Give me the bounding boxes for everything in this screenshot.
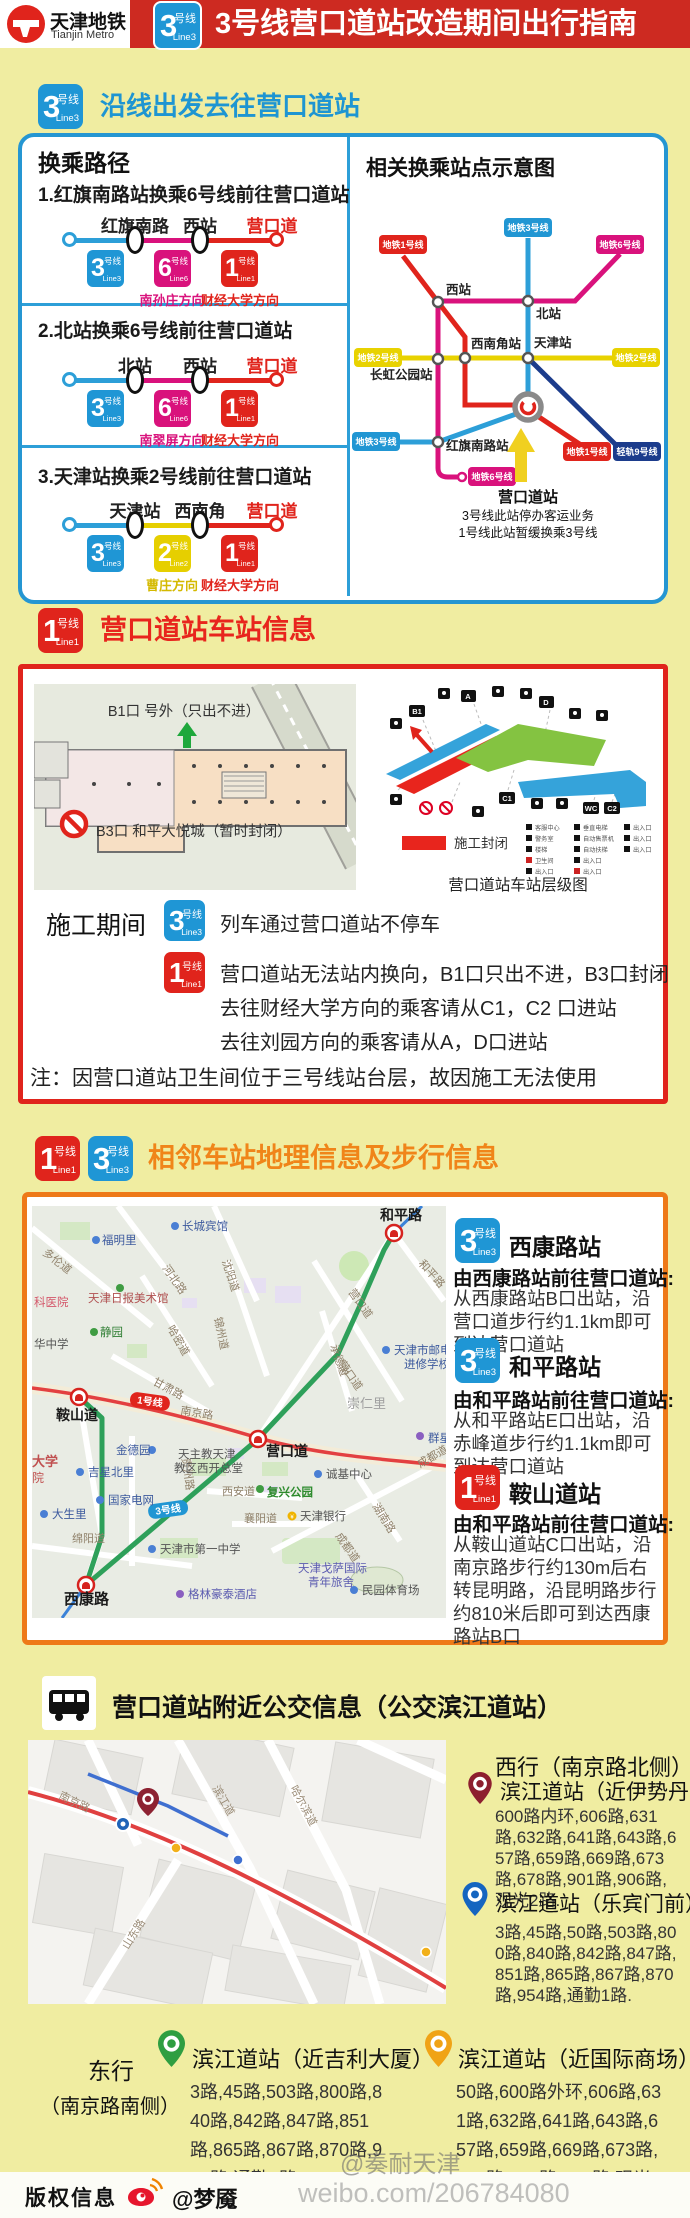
label-xiandao: 西安道 xyxy=(222,1484,255,1498)
pin-west2-icon xyxy=(462,1882,488,1916)
label-youdian2: 进修学校 xyxy=(404,1357,446,1371)
pin-west1-icon xyxy=(468,1772,492,1804)
copyright-label: 版权信息 xyxy=(25,2182,117,2212)
badge-line3-top: 地铁3号线 xyxy=(507,222,548,233)
route1-interchange-1 xyxy=(126,226,144,254)
logo-subtitle: Tianjin Metro xyxy=(51,29,114,41)
route2-line6-badge: 6号线Line6 xyxy=(154,390,191,427)
transfer-title: 换乘路径 xyxy=(38,144,130,178)
mini-6: 自动售票机 xyxy=(583,835,615,843)
schematic-station-labels: 西站 北站 西南角站 天津站 长虹公园站 红旗南路站 xyxy=(370,282,572,453)
route1-seg-line1 xyxy=(200,238,277,243)
s3-heading: 相邻车站地理信息及步行信息 xyxy=(148,1136,499,1181)
network-schematic: 地铁1号线 地铁3号线 地铁6号线 地铁2号线 地铁2号线 地铁3号线 地铁6号… xyxy=(350,190,664,596)
east1-name: 滨江道站（近吉利大厦） xyxy=(192,2042,434,2074)
exit-box-a: A xyxy=(465,692,471,701)
cons-line3-text: 列车通过营口道站不停车 xyxy=(220,908,440,937)
mini-7: 自动扶梯 xyxy=(583,846,608,854)
pin-east1-icon xyxy=(158,2030,185,2067)
mini-12: 出入口 xyxy=(633,846,652,854)
watermark-url: weibo.com/206784080 xyxy=(298,2178,570,2209)
weibo-handle: @梦魇 xyxy=(172,2182,237,2214)
s3-line1-badge: 1号线Line1 xyxy=(35,1136,80,1181)
cons-line1-text3: 去往刘园方向的乘客请从A，D口进站 xyxy=(220,1026,548,1055)
route3-line3-badge: 3号线Line3 xyxy=(87,535,124,572)
callout-station: 营口道站 xyxy=(498,488,558,506)
line1-path xyxy=(403,256,513,405)
route2-seg-line1 xyxy=(200,378,277,383)
callout-line1: 3号线此站停办客运业务 xyxy=(462,508,594,523)
route1-line6-badge: 6号线Line6 xyxy=(154,250,191,287)
label-daxue: 大学 xyxy=(32,1454,58,1469)
west2-name: 滨江道站（乐宾门前） xyxy=(496,1888,690,1918)
label-xiangyangdao: 襄阳道 xyxy=(244,1511,277,1525)
mini-9: 出入口 xyxy=(583,868,602,876)
exit-box-wc: WC xyxy=(585,804,598,813)
label-jindeyuan: 金德园 xyxy=(116,1443,151,1457)
label-minyuan: 民园体育场 xyxy=(362,1583,420,1597)
exit-b3-label: B3口 和平大悦城（暂时封闭） xyxy=(96,823,292,840)
s2-heading: 营口道站车站信息 xyxy=(100,608,316,653)
route2-heading: 2.北站换乘6号线前往营口道站 xyxy=(38,316,292,343)
label-qunxing: 群星 xyxy=(428,1431,446,1445)
header-line3-badge: 3 号线 Line3 xyxy=(153,1,202,50)
cons-line1-text1: 营口道站无法站内换向，B1口只出不进，B3口封闭 xyxy=(220,958,669,987)
route2-endpoint-left xyxy=(62,372,77,387)
label-yingkoudao-station: 营口道 xyxy=(266,1443,308,1459)
card2-name: 和平路站 xyxy=(509,1348,601,1382)
mini-legend: 客服中心 警务室 楼梯 卫生间 出入口 垂直电梯 自动售票机 自动扶梯 出入口 … xyxy=(526,824,652,876)
route3-heading: 3.天津站换乘2号线前往营口道站 xyxy=(38,462,311,489)
route2-dir-mid: 南翠屏方向 xyxy=(139,430,204,449)
route2-interchange-1 xyxy=(126,366,144,394)
exit-box-b1: B1 xyxy=(412,707,422,716)
label-meishuguan: 天津日报美术馆 xyxy=(88,1291,169,1305)
label-anshandao-station: 鞍山道 xyxy=(56,1407,98,1423)
route1-endpoint-left xyxy=(62,232,77,247)
badge-line2-right: 地铁2号线 xyxy=(615,352,656,363)
east2-name: 滨江道站（近国际商场） xyxy=(458,2042,690,2074)
east-heading-2: （南京路南侧） xyxy=(40,2090,180,2119)
watermark-account: @奏耐天津 xyxy=(340,2144,460,2179)
label-youdian1: 天津市邮电通 xyxy=(394,1343,446,1357)
yingkoudao-interchange-ring xyxy=(515,394,541,420)
card3-text: 从鞍山道站C口出站，沿南京路步行约130m后右转昆明路，沿昆明路步行约810米后… xyxy=(453,1533,665,1648)
route3-line2-badge: 2号线Line2 xyxy=(154,535,191,572)
label-mianyangdao: 绵阳道 xyxy=(72,1531,105,1545)
badge-line1-bottom: 地铁1号线 xyxy=(566,446,607,457)
label-fuxinggongyuan: 复兴公园 xyxy=(266,1485,313,1499)
label-tianjinzhan: 天津站 xyxy=(534,335,572,350)
label-gesa1: 天津戈萨国际 xyxy=(298,1562,367,1575)
mini-10: 出入口 xyxy=(633,824,652,832)
label-yizhong: 天津市第一中学 xyxy=(160,1542,241,1556)
label-yuan: 院 xyxy=(32,1471,44,1485)
route1-interchange-2 xyxy=(191,226,209,254)
s4-heading: 营口道站附近公交信息（公交滨江道站） xyxy=(112,1688,562,1724)
label-huazhongxue: 华中学 xyxy=(34,1337,69,1351)
poster: 天津地铁 Tianjin Metro 3 号线 Line3 3号线营口道站改造期… xyxy=(0,0,690,2218)
west1-name: 滨江道站（近伊势丹） xyxy=(500,1776,690,1806)
label-xizhan: 西站 xyxy=(446,282,472,297)
cons-line1-badge: 1号线Line1 xyxy=(164,952,205,993)
s1-line3-badge: 3 号线 Line3 xyxy=(38,84,83,129)
weibo-icon xyxy=(126,2176,164,2210)
label-tianzhujiao1: 天主教天津 xyxy=(178,1447,236,1461)
s3-line3-badge: 3号线Line3 xyxy=(88,1136,133,1181)
bus-icon xyxy=(46,1684,92,1724)
route3-interchange-2 xyxy=(191,511,209,539)
exit-box-c2: C2 xyxy=(607,804,617,813)
page-title: 3号线营口道站改造期间出行指南 xyxy=(215,0,637,48)
label-jingyuan: 静园 xyxy=(100,1325,123,1339)
card3-name: 鞍山道站 xyxy=(509,1475,601,1509)
west2-routes: 3路,45路,50路,503路,800路,840路,842路,847路,851路… xyxy=(495,1922,683,2006)
label-yinhang: 天津银行 xyxy=(300,1509,346,1523)
mini-3: 卫生间 xyxy=(535,857,554,865)
label-beizhan: 北站 xyxy=(536,306,562,321)
label-dianwang: 国家电网 xyxy=(108,1493,154,1507)
line6-terminus-dot xyxy=(458,473,466,481)
station-floorplan: B1口 号外（只出不进） B3口 和平大悦城（暂时封闭） xyxy=(34,684,356,890)
route2-endpoint-right xyxy=(269,372,284,387)
route1-heading: 1.红旗南路站换乘6号线前往营口道站 xyxy=(38,180,349,207)
label-xikanglu-station: 西康路 xyxy=(64,1590,110,1608)
mini-4: 出入口 xyxy=(535,868,554,876)
legend-closed-label: 施工封闭 xyxy=(454,836,508,851)
route3-endpoint-left xyxy=(62,517,77,532)
badge-line2-left: 地铁2号线 xyxy=(357,352,398,363)
route3-interchange-1 xyxy=(126,511,144,539)
card3-line1-badge: 1号线Line1 xyxy=(455,1465,500,1510)
street-map: 1号线 3号线 ¥ 多伦道 河北路 沈阳道 哈密道 锦州道 甘肃路 南京路 承德… xyxy=(32,1206,446,1618)
bus-map: 南京路 哈尔滨道 滨江道 山东路 xyxy=(28,1740,446,2004)
route3-dir-right: 财经大学方向 xyxy=(201,575,279,594)
route1-dir-mid: 南孙庄方向 xyxy=(139,290,204,309)
mini-8: 出入口 xyxy=(583,857,602,865)
cons-line1-text2: 去往财经大学方向的乘客请从C1，C2 口进站 xyxy=(220,992,617,1021)
station-level-diagram: B1 A D C1 C2 WC 施工封闭 客服中心 警务室 楼梯 卫生间 出入口… xyxy=(368,686,666,896)
label-hongqi: 红旗南路站 xyxy=(446,438,509,453)
badge-line6-top: 地铁6号线 xyxy=(599,239,640,250)
route3-dir-mid: 曹庄方向 xyxy=(146,575,198,594)
route1-dir-right: 财经大学方向 xyxy=(201,290,279,309)
level-diagram-caption: 营口道站车站层级图 xyxy=(448,876,588,894)
route3-seg-line1 xyxy=(200,523,277,528)
card1-name: 西康路站 xyxy=(509,1228,601,1262)
card1-line3-badge: 3号线Line3 xyxy=(455,1218,500,1263)
label-chongrenli: 崇仁里 xyxy=(347,1396,386,1411)
label-keyiyuan: 科医院 xyxy=(34,1295,69,1309)
badge-line6-bottom: 地铁6号线 xyxy=(471,471,512,482)
cons-note: 注：因营口道站卫生间位于三号线站台层，故因施工无法使用 xyxy=(30,1062,597,1092)
route1-endpoint-right xyxy=(269,232,284,247)
callout-line2: 1号线此站暂缓换乘3号线 xyxy=(459,526,598,540)
label-gelinhaotai: 格林豪泰酒店 xyxy=(188,1587,257,1601)
label-fumingli: 福明里 xyxy=(102,1233,137,1247)
label-changhong: 长虹公园站 xyxy=(370,367,433,382)
east-heading-1: 东行 xyxy=(88,2052,134,2086)
label-xinanjiao: 西南角站 xyxy=(471,336,522,351)
legend-closed-swatch xyxy=(402,836,446,850)
label-hepinglu-station: 和平路 xyxy=(380,1207,423,1223)
schematic-title: 相关换乘站点示意图 xyxy=(366,152,555,182)
label-changcheng: 长城宾馆 xyxy=(182,1219,228,1233)
label-gesa2: 青年旅舍 xyxy=(308,1575,354,1589)
route3-line1-badge: 1号线Line1 xyxy=(221,535,258,572)
mini-0: 客服中心 xyxy=(535,824,560,832)
closed-exit-dots xyxy=(420,802,452,814)
s1-heading: 沿线出发去往营口道站 xyxy=(100,84,360,129)
route3-endpoint-right xyxy=(269,517,284,532)
label-chengjizhongxin: 诚基中心 xyxy=(326,1468,372,1481)
route1-line3-badge: 3号线Line3 xyxy=(87,250,124,287)
label-tianzhujiao2: 教区西开总堂 xyxy=(174,1461,243,1475)
cons-line3-badge: 3号线Line3 xyxy=(164,900,205,941)
label-jixingbeili: 吉星北里 xyxy=(88,1466,134,1479)
route2-line1-badge: 1号线Line1 xyxy=(221,390,258,427)
exit-box-d: D xyxy=(543,698,549,707)
label-dashengli: 大生里 xyxy=(52,1507,87,1521)
route1-line1-badge: 1号线Line1 xyxy=(221,250,258,287)
tianjin-metro-logo-icon xyxy=(6,4,46,44)
badge-line1-top: 地铁1号线 xyxy=(382,239,423,250)
route2-line3-badge: 3号线Line3 xyxy=(87,390,124,427)
mini-1: 警务室 xyxy=(535,835,554,843)
route2-interchange-2 xyxy=(191,366,209,394)
exit-b1-label: B1口 号外（只出不进） xyxy=(108,703,260,720)
s2-line1-badge: 1号线Line1 xyxy=(38,608,83,653)
badge-line3-left: 地铁3号线 xyxy=(355,436,396,447)
construction-label: 施工期间 xyxy=(46,906,146,942)
badge-line9-bottom: 轻轨9号线 xyxy=(616,446,657,457)
mini-11: 出入口 xyxy=(633,835,652,843)
exit-box-c1: C1 xyxy=(502,794,512,803)
mini-5: 垂直电梯 xyxy=(583,824,608,832)
pin-east2-icon xyxy=(425,2030,452,2067)
line9-path xyxy=(532,362,616,445)
card2-line3-badge: 3号线Line3 xyxy=(455,1338,500,1383)
mini-2: 楼梯 xyxy=(535,846,547,854)
route2-dir-right: 财经大学方向 xyxy=(201,430,279,449)
